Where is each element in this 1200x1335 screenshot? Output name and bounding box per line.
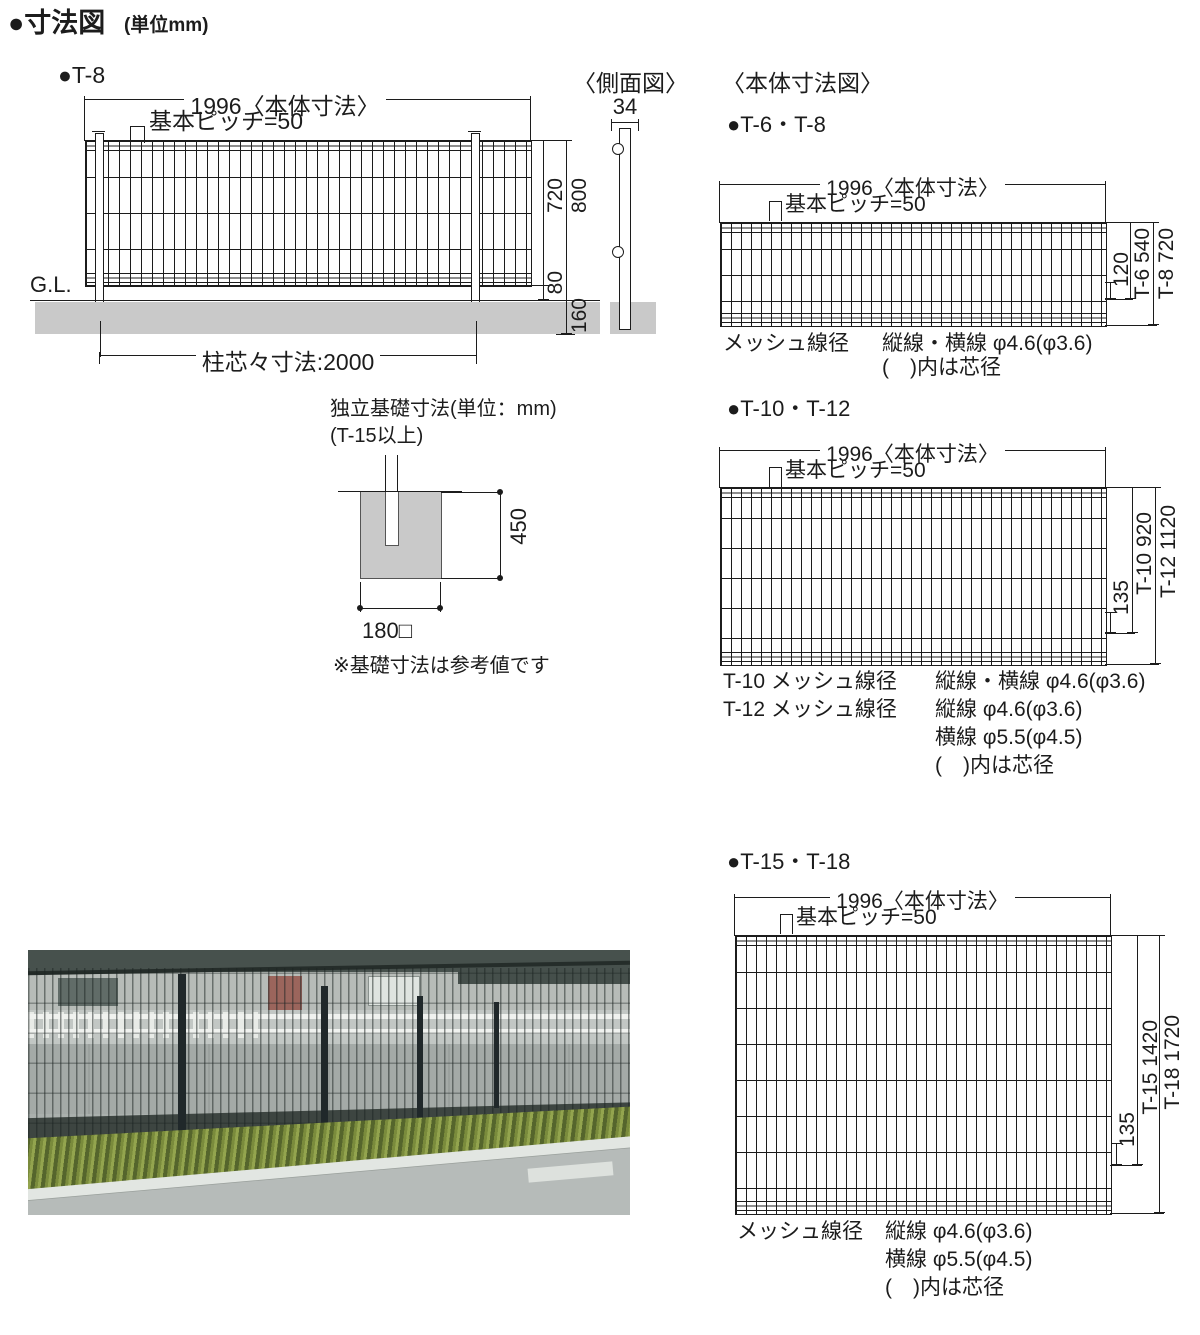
foundation-note: ※基礎寸法は参考値です — [333, 655, 550, 678]
foundation-post-hole — [385, 492, 399, 546]
spec-row-value: 縦線・横線 φ4.6(φ3.6) — [935, 670, 1145, 694]
dim-label-post-pitch: 柱芯々寸法:2000 — [100, 343, 476, 377]
spec-row-value: 横線 φ5.5(φ4.5) — [885, 1248, 1032, 1272]
spec-label: メッシュ線径 — [723, 332, 849, 356]
t10t12-label: ●T-10・T-12 — [727, 396, 850, 421]
dim-tick — [556, 334, 575, 335]
t6t8-label: ●T-6・T-8 — [727, 112, 826, 137]
pitch-bracket — [769, 467, 782, 487]
pitch-bracket — [769, 201, 782, 221]
dim-label-t6-540: T-6 540 — [1131, 228, 1155, 299]
dim-dot — [497, 489, 503, 495]
product-photo — [28, 950, 630, 1215]
post-cap — [92, 131, 105, 132]
spec-note: ( )内は芯径 — [935, 754, 1054, 778]
dim-label-pitch: 基本ピッチ=50 — [796, 906, 937, 930]
spec-row-value: 横線 φ5.5(φ4.5) — [935, 726, 1082, 750]
dim-label-pitch: 基本ピッチ=50 — [149, 108, 303, 134]
photo-post — [417, 996, 423, 1120]
dim-label-800: 800 — [568, 178, 592, 213]
spec-row-label: T-12 メッシュ線径 — [723, 698, 897, 722]
dimension-sheet: ●寸法図 (単位mm) ●T-8 1996〈本体寸法〉 基本ピッチ=50 G.L… — [0, 0, 1200, 1335]
spec-note: ( )内は芯径 — [885, 1276, 1004, 1300]
spec-note: ( )内は芯径 — [882, 356, 1001, 380]
t15t18-label: ●T-15・T-18 — [727, 849, 850, 874]
dim-label-160: 160 — [568, 298, 592, 333]
spec-row-value: 縦線 φ4.6(φ3.6) — [935, 698, 1082, 722]
dim-tick — [441, 492, 501, 493]
foundation-subtitle: (T-15以上) — [330, 425, 423, 448]
dim-label-135: 135 — [1110, 580, 1134, 615]
dim-label-t8-720: T-8 720 — [1155, 228, 1179, 299]
foundation-post-line — [397, 455, 398, 492]
spec-row-value: 縦線 φ4.6(φ3.6) — [885, 1220, 1032, 1244]
panel-hook-bottom — [612, 246, 624, 258]
dim-line-800-160 — [566, 140, 567, 334]
post-cap — [468, 131, 481, 132]
dim-label-80: 80 — [544, 271, 568, 294]
gl-label: G.L. — [30, 272, 72, 297]
page-title-unit: (単位mm) — [124, 15, 208, 37]
dim-tick — [1105, 325, 1157, 326]
foundation-title: 独立基礎寸法(単位：mm) — [330, 398, 557, 421]
photo-post — [321, 986, 328, 1136]
panel-hook-top — [612, 143, 624, 155]
dim-dot — [357, 605, 363, 611]
photo-post — [494, 1002, 499, 1108]
fence-post-right — [471, 133, 480, 323]
t10t12-mesh-panel — [720, 487, 1107, 666]
fence-post-left — [95, 133, 104, 323]
dim-tick — [1110, 1165, 1142, 1166]
dim-label-34: 34 — [605, 94, 645, 120]
spec-row-label: T-10 メッシュ線径 — [723, 670, 897, 694]
dim-tick — [1105, 299, 1133, 300]
span: 34 — [611, 94, 639, 119]
dim-label-t18-1720: T-18 1720 — [1161, 1015, 1185, 1110]
spec-value: 縦線・横線 φ4.6(φ3.6) — [882, 332, 1092, 356]
dim-tick — [1105, 633, 1135, 634]
body-section-title: 〈本体寸法図〉 — [722, 70, 883, 96]
dim-tick — [1110, 1213, 1164, 1214]
dim-tick — [441, 578, 501, 579]
dim-line-180 — [360, 608, 440, 609]
side-post — [619, 128, 631, 330]
dim-label-135: 135 — [1116, 1112, 1140, 1147]
dim-label-pitch: 基本ピッチ=50 — [785, 193, 926, 217]
foundation-post-line — [385, 455, 386, 492]
dim-line-450 — [500, 492, 501, 578]
dim-label-450: 450 — [506, 508, 532, 545]
spec-label: メッシュ線径 — [737, 1220, 863, 1244]
ground-strip — [35, 302, 600, 334]
pitch-bracket — [780, 914, 793, 934]
span: 柱芯々寸法:2000 — [196, 349, 381, 375]
side-foundation — [610, 302, 656, 334]
side-view-title: 〈側面図〉 — [573, 70, 688, 96]
dim-label-720: 720 — [544, 178, 568, 213]
dim-label-180: 180□ — [362, 618, 412, 643]
dim-line-135 — [1110, 612, 1111, 633]
front-view-label: ●T-8 — [58, 62, 105, 88]
gl-line — [30, 300, 600, 301]
dim-dot — [437, 605, 443, 611]
t15t18-mesh-panel — [735, 935, 1112, 1215]
front-mesh-panel — [85, 140, 532, 287]
dim-dot — [497, 575, 503, 581]
dim-line-34 — [612, 122, 638, 123]
t6t8-mesh-panel — [720, 222, 1107, 327]
dim-label-pitch: 基本ピッチ=50 — [785, 459, 926, 483]
foundation-block — [360, 492, 442, 579]
dim-label-t10-920: T-10 920 — [1133, 512, 1157, 595]
dim-label-t12-1120: T-12 1120 — [1157, 505, 1181, 598]
dim-label-t15-1420: T-15 1420 — [1139, 1020, 1163, 1115]
dim-tick — [1105, 664, 1159, 665]
page-title: ●寸法図 — [8, 8, 105, 39]
